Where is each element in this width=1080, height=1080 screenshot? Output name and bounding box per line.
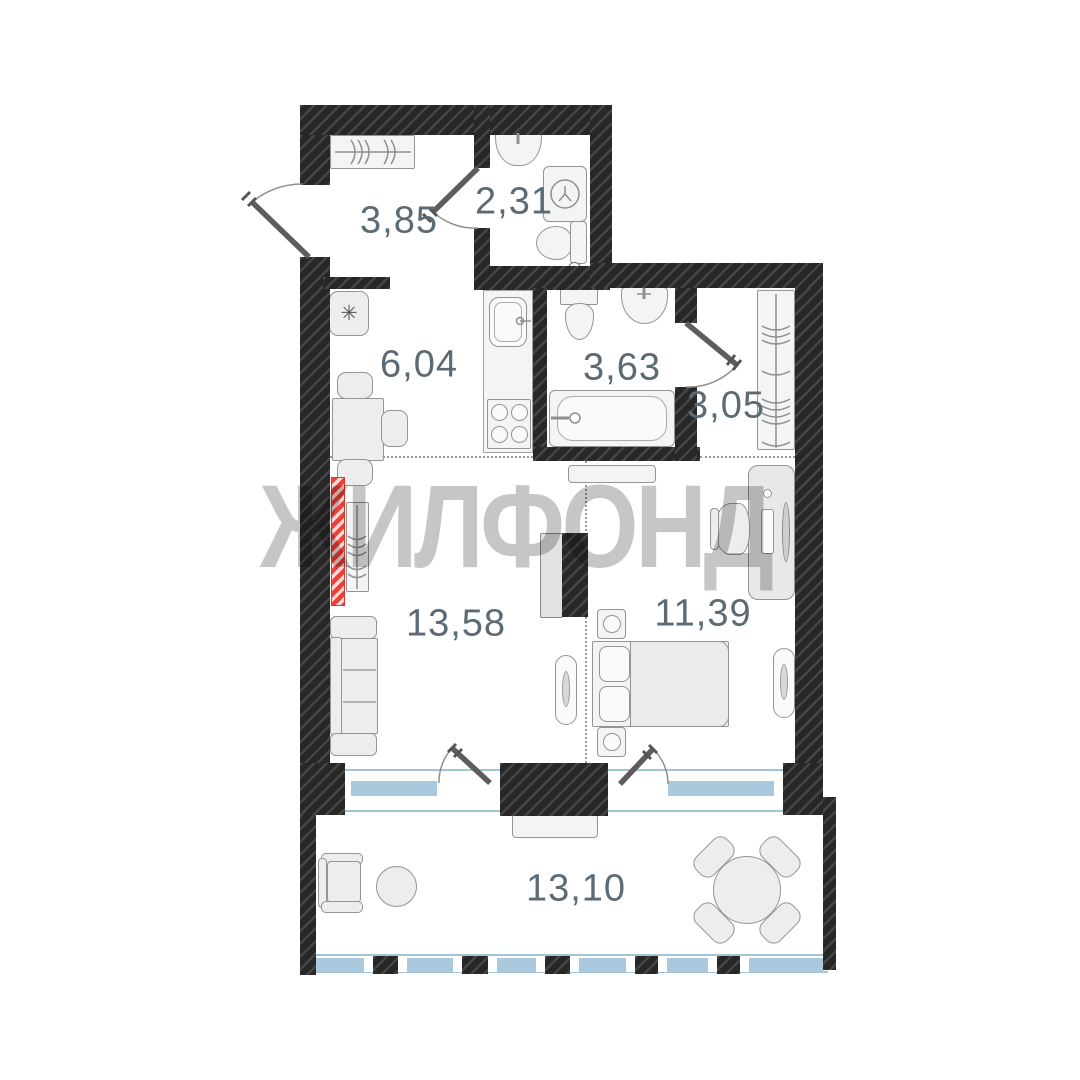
- watermark: ЖИЛФОНД: [260, 468, 771, 586]
- room-area-bathroom: 3,63: [583, 347, 661, 390]
- kitchen-faucet: [517, 318, 532, 325]
- room-area-bedroom: 11,39: [654, 593, 751, 636]
- washbasin-faucet: [637, 288, 651, 299]
- room-area-living-room: 13,58: [406, 603, 506, 646]
- room-area-balcony: 13,10: [526, 868, 626, 911]
- floor-plan: ✳: [0, 0, 1080, 1080]
- washing-machine-drum: [551, 180, 579, 208]
- room-area-wardrobe: 3,05: [687, 385, 765, 428]
- hallway-wardrobe-hangers: [335, 140, 411, 164]
- balcony-door-right: [620, 745, 668, 784]
- bathtub-faucet: [551, 413, 580, 423]
- balcony-door-left: [439, 744, 490, 783]
- room-area-kitchen: 6,04: [380, 344, 458, 387]
- entrance-door: [242, 184, 309, 257]
- bathroom-door: [686, 323, 741, 387]
- closet-wardrobe-hangers: [762, 294, 790, 448]
- room-area-hallway: 3,85: [360, 200, 438, 243]
- room-area-wc: 2,31: [475, 181, 553, 224]
